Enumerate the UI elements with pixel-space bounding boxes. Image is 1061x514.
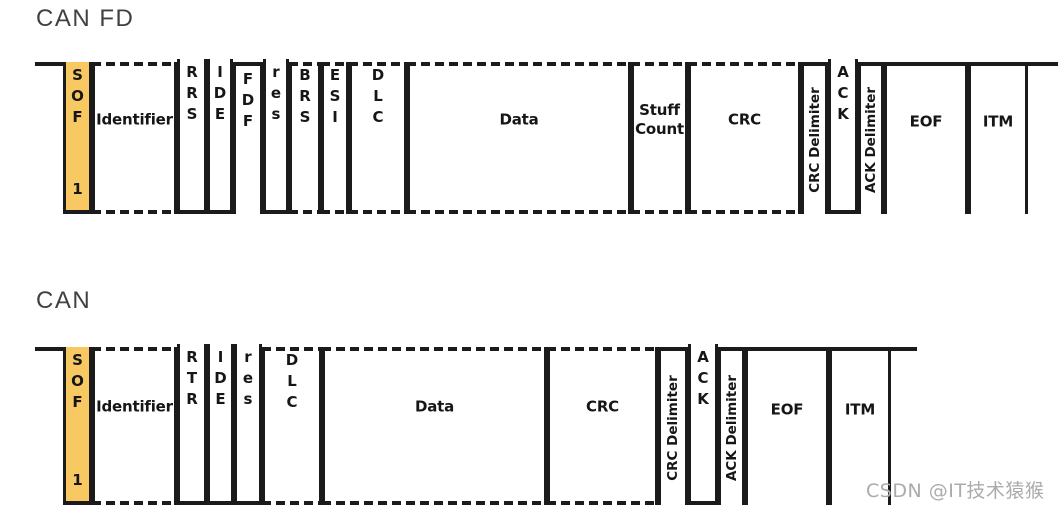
canfd-field-identifier: Identifier (92, 62, 177, 214)
can-field-dlc: D L C (262, 347, 322, 505)
field-label: CRC (550, 398, 655, 417)
field-label: ITM (832, 400, 888, 419)
field-label: Data (410, 110, 628, 129)
diagram-title-canfd: CAN FD (36, 5, 134, 33)
can-field-rtr: R T R (177, 344, 207, 505)
field-label: r e s (237, 347, 259, 410)
canfd-field-fdf: F D F (233, 62, 263, 214)
can-field-ide: I D E (207, 344, 234, 505)
canfd-field-dlc: D L C (349, 62, 407, 214)
canfd-field-ack-delimiter: ACK Delimiter (858, 62, 884, 214)
field-label: A C K (831, 62, 855, 125)
can-frame-comparison-diagram: CAN FD S O F1IdentifierR R SI D EF D Fr … (0, 0, 1061, 514)
field-label: CRC Delimiter (807, 87, 823, 193)
field-label: S O F (66, 65, 89, 128)
canfd-field-esi: E S I (321, 62, 349, 214)
canfd-field-stuff-count: Stuff Count (631, 62, 688, 214)
field-label: ITM (971, 113, 1025, 132)
field-label: A C K (691, 347, 715, 410)
field-label: r e s (266, 62, 286, 125)
can-field-crc: CRC (547, 347, 658, 505)
field-label: Identifier (95, 398, 174, 417)
watermark: CSDN @IT技术猿猴 (866, 476, 1044, 503)
field-label: Stuff Count (634, 101, 685, 139)
can-field-ack-delimiter: ACK Delimiter (718, 347, 745, 505)
field-label: E S I (324, 65, 346, 128)
canfd-lead-line (35, 62, 66, 66)
can-field-crc-delimiter: CRC Delimiter (658, 347, 688, 505)
field-label: B R S (292, 65, 318, 128)
field-label: ACK Delimiter (724, 375, 740, 481)
field-label: I D E (210, 62, 230, 125)
field-label: D L C (352, 65, 404, 128)
field-label: S O F (66, 350, 89, 413)
can-lead-line (35, 347, 66, 351)
canfd-field-crc: CRC (688, 62, 801, 214)
can-field-identifier: Identifier (92, 347, 177, 505)
can-field-ack: A C K (688, 344, 718, 505)
field-label: ACK Delimiter (863, 87, 879, 193)
field-label: Data (325, 398, 544, 417)
field-label: D L C (265, 350, 319, 413)
canfd-field-brs: B R S (289, 62, 321, 214)
field-label: CRC (691, 110, 798, 129)
canfd-field-crc-delimiter: CRC Delimiter (801, 62, 828, 214)
canfd-field-res: r e s (263, 59, 289, 214)
can-field-eof: EOF (745, 347, 829, 505)
can-field-data: Data (322, 347, 547, 505)
field-label: R R S (180, 62, 204, 125)
field-label: R T R (180, 347, 204, 410)
canfd-field-data: Data (407, 62, 631, 214)
sof-bit-value: 1 (66, 471, 89, 489)
field-label: I D E (210, 347, 231, 410)
sof-bit-value: 1 (66, 180, 89, 198)
can-field-sof: S O F1 (63, 347, 92, 505)
canfd-field-itm: ITM (968, 62, 1028, 214)
field-label: EOF (887, 113, 965, 132)
field-label: Identifier (95, 110, 174, 129)
field-label: EOF (748, 400, 826, 419)
canfd-field-rrs: R R S (177, 59, 207, 214)
diagram-title-can: CAN (36, 287, 91, 315)
field-label: F D F (236, 69, 260, 132)
canfd-field-eof: EOF (884, 62, 968, 214)
canfd-trail-line (1028, 62, 1058, 66)
can-field-res: r e s (234, 344, 262, 505)
canfd-frame-diagram: S O F1IdentifierR R SI D EF D Fr e sB R … (0, 62, 1061, 214)
canfd-field-ide: I D E (207, 59, 233, 214)
can-trail-line (891, 347, 917, 351)
field-label: CRC Delimiter (665, 375, 681, 481)
canfd-field-sof: S O F1 (63, 62, 92, 214)
canfd-field-ack: A C K (828, 59, 858, 214)
